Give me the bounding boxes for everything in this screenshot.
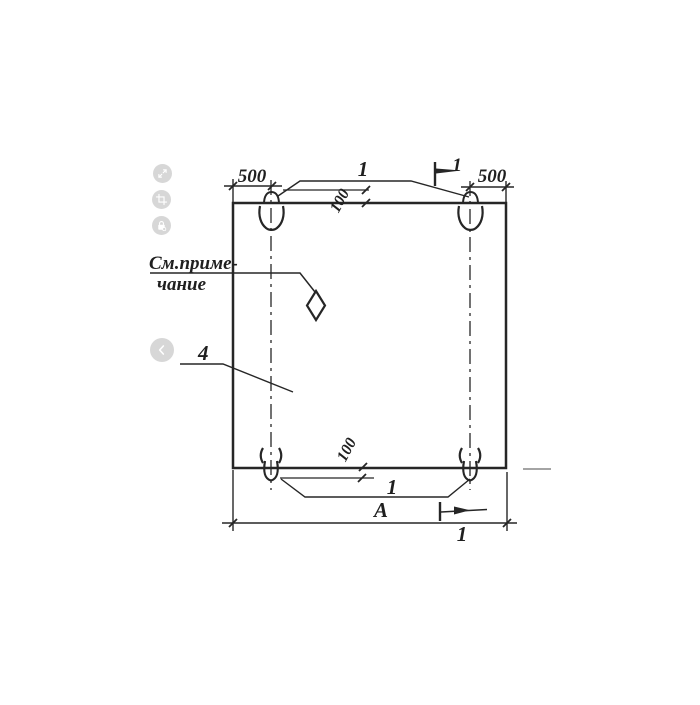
label-dim-100-bottom: 100 — [334, 435, 360, 464]
callout-panel: 4 — [180, 341, 293, 392]
chevron-left-icon — [154, 342, 170, 358]
expand-button[interactable] — [153, 164, 172, 183]
section-mark-bottom: 1 — [440, 502, 487, 546]
crop-icon — [155, 193, 168, 206]
label-dim-500-left: 500 — [238, 166, 267, 187]
note-callout: См.приме- чание — [149, 253, 325, 320]
label-section-bottom: 1 — [457, 522, 468, 546]
label-callout-panel: 4 — [197, 341, 209, 365]
crop-button[interactable] — [152, 190, 171, 209]
dimension-500-right: 500 — [461, 166, 514, 203]
dimension-100-bottom: 100 — [280, 435, 374, 482]
label-callout-bottom-loops: 1 — [387, 475, 398, 499]
label-note-line2: чание — [157, 274, 207, 295]
label-dim-500-right: 500 — [478, 166, 507, 187]
label-note-line1: См.приме- — [149, 253, 238, 274]
lock-button[interactable] — [152, 216, 171, 235]
callout-top-loops: 1 — [278, 157, 469, 197]
dimension-500-left: 500 — [224, 166, 282, 203]
label-section-top: 1 — [452, 155, 462, 176]
panel-outline — [233, 203, 506, 468]
label-dim-100-top: 100 — [327, 186, 353, 215]
expand-icon — [156, 167, 169, 180]
section-mark-top: 1 — [435, 155, 462, 186]
prev-image-button[interactable] — [150, 338, 174, 362]
label-callout-top-loops: 1 — [358, 157, 369, 181]
label-dim-width: А — [372, 498, 388, 522]
diamond-marker — [307, 291, 325, 320]
technical-drawing-canvas: 500 500 1 100 1 См.приме- ча — [0, 0, 700, 700]
dimension-100-top: 100 — [283, 186, 370, 215]
lock-icon — [155, 219, 168, 232]
drawing-viewer: 500 500 1 100 1 См.приме- ча — [0, 0, 700, 700]
